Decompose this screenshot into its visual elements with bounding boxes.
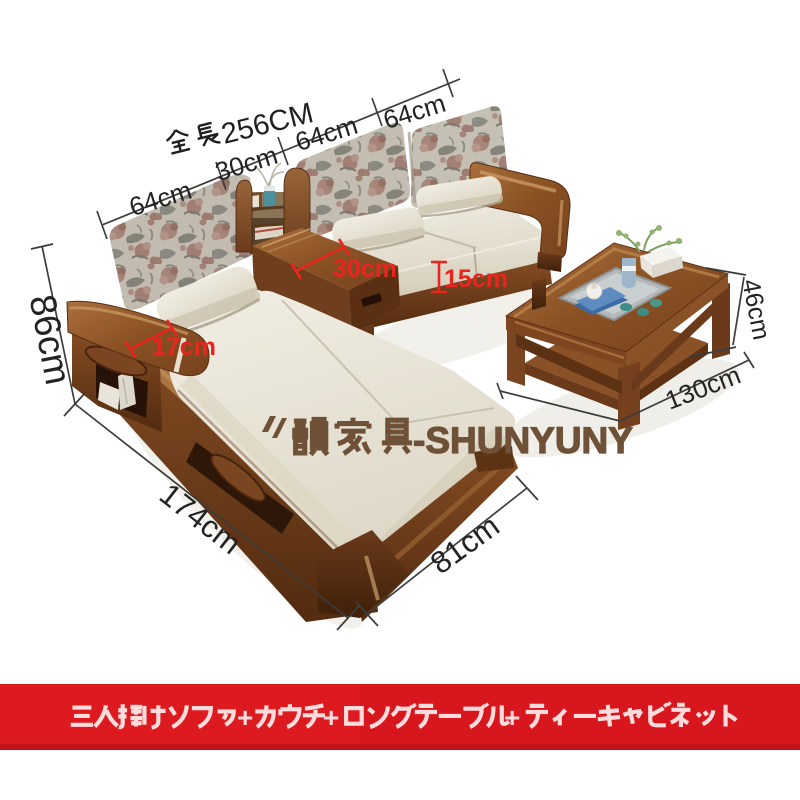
svg-text:17cm: 17cm [152,333,216,361]
svg-text:+: + [504,702,520,733]
svg-text:-SHUNYUNY: -SHUNYUNY [413,420,633,461]
svg-text:30cm: 30cm [333,255,397,283]
svg-text:+: + [237,702,253,733]
svg-text:+: + [323,702,339,733]
svg-text:15cm: 15cm [444,265,508,293]
